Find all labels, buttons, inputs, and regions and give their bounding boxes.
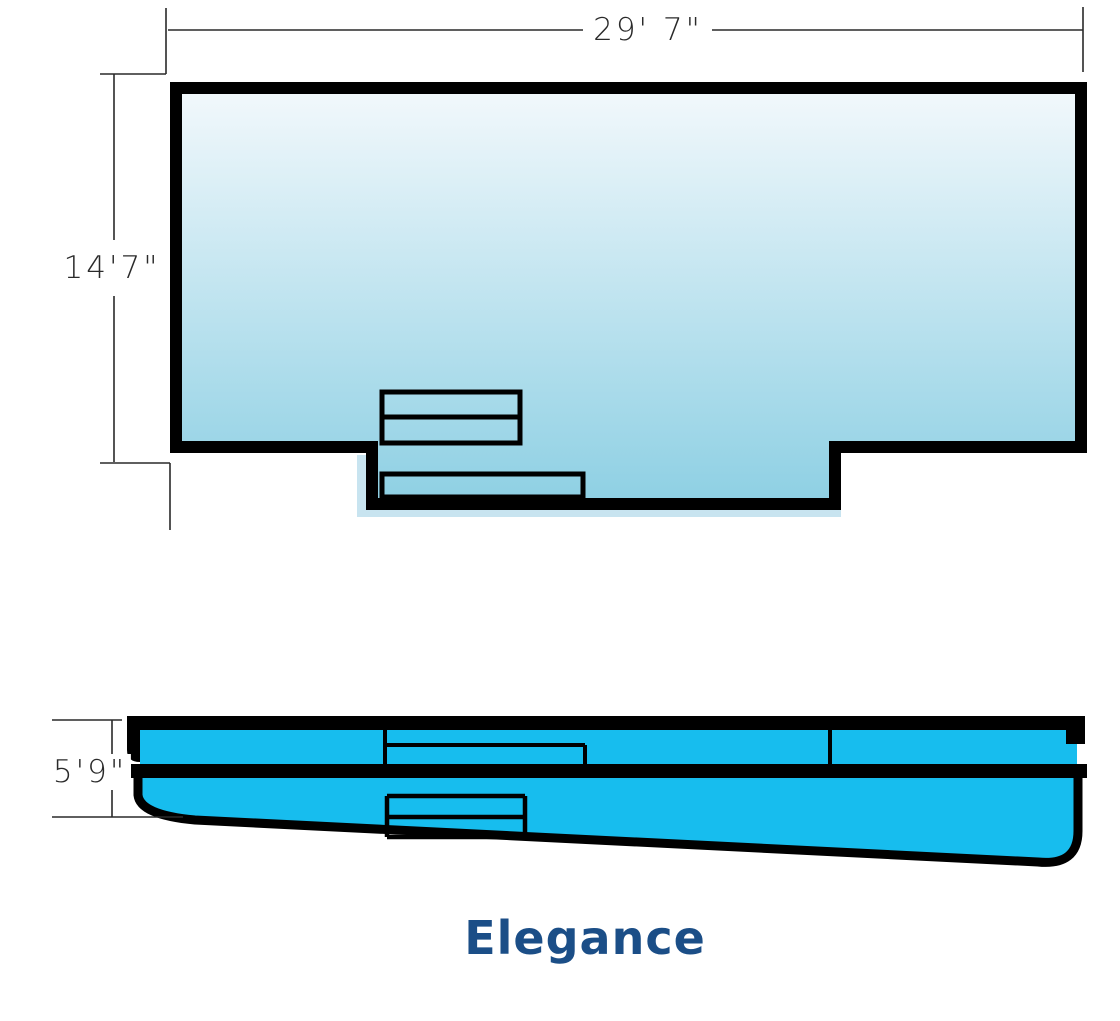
profile-seam-left bbox=[383, 730, 387, 766]
profile-upper-band bbox=[140, 728, 1077, 768]
profile-mid-bar bbox=[131, 764, 1087, 778]
height-dimension-label: 14'7" bbox=[60, 250, 165, 286]
profile-seam-right bbox=[828, 730, 832, 766]
plan-view bbox=[100, 7, 1083, 530]
pool-diagram-drawing bbox=[0, 0, 1120, 1021]
depth-dimension-label: 5'9" bbox=[49, 754, 131, 790]
profile-rim bbox=[127, 716, 1085, 730]
width-dimension-label: 29' 7" bbox=[589, 12, 707, 48]
plan-pool-shell bbox=[176, 88, 1081, 504]
profile-right-notch bbox=[1066, 730, 1085, 744]
pool-model-title: Elegance bbox=[464, 911, 706, 965]
depth-profile-view bbox=[52, 716, 1087, 862]
profile-lower-body bbox=[138, 773, 1078, 862]
pool-diagram: 29' 7" 14'7" 5'9" Elegance bbox=[0, 0, 1120, 1021]
height-dimension-lines bbox=[100, 74, 170, 530]
